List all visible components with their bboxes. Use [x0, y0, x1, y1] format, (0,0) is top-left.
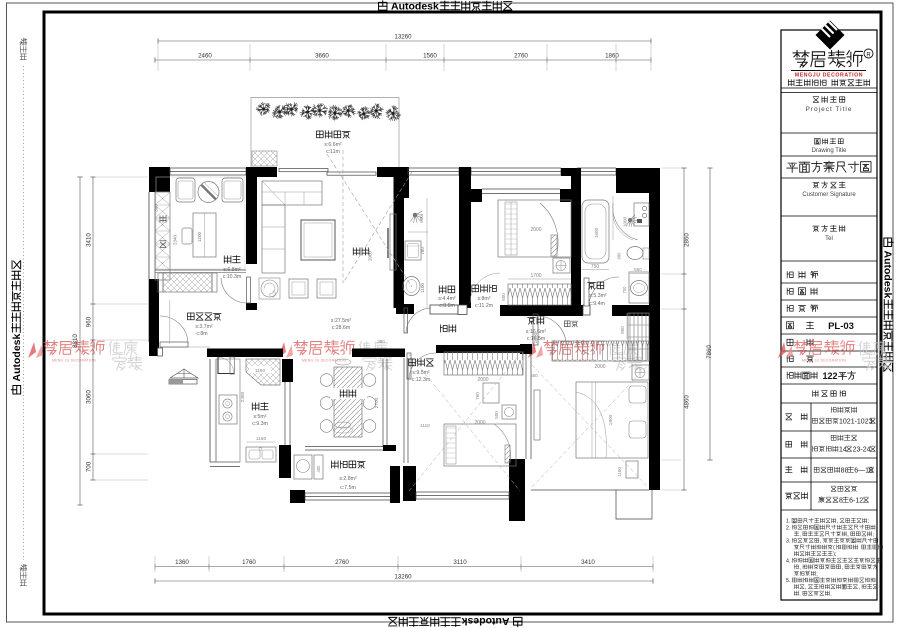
svg-text:3410: 3410	[581, 559, 595, 566]
svg-text:400: 400	[316, 465, 321, 473]
svg-text:600: 600	[501, 293, 506, 301]
svg-text:2340: 2340	[173, 234, 178, 245]
svg-text:,: ,	[847, 532, 848, 538]
svg-text:122: 122	[822, 371, 837, 381]
svg-text:1360: 1360	[175, 559, 189, 566]
svg-text:800: 800	[620, 326, 625, 334]
svg-text:1.: 1.	[786, 519, 790, 525]
svg-text:MENGJU DECORATION: MENGJU DECORATION	[795, 73, 863, 79]
svg-text:88: 88	[841, 468, 849, 475]
svg-text:1700: 1700	[530, 273, 541, 279]
svg-text:c:8m: c:8m	[196, 331, 207, 337]
svg-text:c:10.3m: c:10.3m	[223, 274, 241, 280]
svg-text:c:9.4m: c:9.4m	[589, 301, 605, 307]
svg-text:750: 750	[591, 264, 600, 270]
svg-text:,: ,	[805, 585, 806, 591]
svg-text:300: 300	[377, 339, 385, 344]
svg-text:2000: 2000	[477, 377, 488, 383]
svg-text:,: ,	[858, 585, 859, 591]
svg-text:· · · · · · · ·: · · · · · · · ·	[567, 364, 582, 368]
svg-text:8: 8	[839, 498, 843, 505]
svg-text:.: .	[799, 591, 800, 597]
svg-text:;: ;	[816, 572, 817, 578]
svg-text:.: .	[830, 591, 831, 597]
svg-text:Project Title: Project Title	[806, 106, 853, 113]
svg-text:R: R	[866, 53, 871, 59]
svg-text:c:11.2m: c:11.2m	[475, 303, 493, 309]
svg-text:s:4.4m²: s:4.4m²	[438, 296, 456, 302]
svg-text:Autodesk: Autodesk	[462, 615, 510, 627]
svg-text:c:7.5m: c:7.5m	[340, 485, 356, 491]
svg-text:550: 550	[530, 373, 538, 378]
svg-text:13260: 13260	[394, 574, 412, 581]
svg-text:);: );	[833, 552, 836, 558]
svg-text:Autodesk: Autodesk	[11, 334, 23, 382]
svg-text:s:3.7m²: s:3.7m²	[195, 324, 213, 330]
svg-text:760: 760	[475, 392, 480, 400]
svg-text:s:8m²: s:8m²	[478, 296, 491, 302]
svg-text:c:8.8m: c:8.8m	[439, 303, 455, 309]
svg-text:2000: 2000	[368, 250, 373, 261]
svg-text:,: ,	[820, 539, 821, 545]
svg-text:,: ,	[837, 519, 838, 525]
svg-text:1021-1023: 1021-1023	[839, 419, 873, 426]
svg-text:880: 880	[617, 252, 622, 260]
svg-text:1100: 1100	[420, 283, 425, 293]
svg-text:,: ,	[799, 532, 800, 538]
svg-text:c:9.3m: c:9.3m	[252, 421, 268, 427]
svg-text:3060: 3060	[86, 390, 93, 404]
svg-text:550: 550	[634, 267, 642, 272]
svg-text:· · · · · · · ·: · · · · · · · ·	[317, 364, 332, 368]
svg-text:1800: 1800	[608, 414, 614, 425]
svg-text:· · · · · · · ·: · · · · · · · ·	[817, 364, 832, 368]
svg-text:MENG JU DECORATION: MENG JU DECORATION	[52, 359, 96, 363]
svg-text:Drawing Title: Drawing Title	[812, 148, 847, 154]
svg-text:3.: 3.	[786, 539, 790, 545]
svg-text:1560: 1560	[423, 53, 437, 60]
svg-text:3410: 3410	[86, 233, 93, 247]
svg-text:23-24: 23-24	[853, 447, 871, 454]
svg-text:s:27.5m²: s:27.5m²	[331, 318, 351, 324]
svg-text:(: (	[833, 545, 835, 551]
svg-text:Tel: Tel	[825, 236, 833, 242]
svg-text:Autodesk: Autodesk	[391, 1, 439, 13]
svg-text:2000: 2000	[533, 332, 539, 343]
svg-text:7860: 7860	[706, 345, 713, 359]
svg-text:13260: 13260	[394, 34, 412, 41]
svg-text:2760: 2760	[514, 53, 528, 60]
svg-text:s:2.8m²: s:2.8m²	[339, 476, 357, 482]
svg-text:s:6.8m²: s:6.8m²	[223, 267, 241, 273]
svg-text:8810: 8810	[72, 334, 79, 348]
svg-text:s:5.3m²: s:5.3m²	[589, 293, 607, 299]
svg-text:5.: 5.	[786, 578, 790, 584]
svg-text:;: ;	[868, 519, 869, 525]
svg-text:300: 300	[154, 204, 159, 212]
svg-text:s:6.6m²: s:6.6m²	[324, 142, 342, 148]
svg-text:PL-03: PL-03	[828, 321, 854, 332]
svg-text:2700: 2700	[374, 397, 380, 408]
svg-text:2000: 2000	[594, 364, 605, 370]
svg-text:Autodesk: Autodesk	[882, 251, 894, 299]
svg-text:1160: 1160	[255, 368, 266, 374]
svg-text:c:28.6m: c:28.6m	[332, 325, 350, 331]
svg-text:14: 14	[839, 447, 847, 454]
svg-text:4860: 4860	[684, 395, 691, 409]
svg-text:1760: 1760	[242, 559, 256, 566]
svg-text:3110: 3110	[453, 559, 467, 566]
svg-text:c:12.3m: c:12.3m	[412, 377, 430, 383]
svg-text:s:9.5m²: s:9.5m²	[412, 370, 430, 376]
svg-text:2460: 2460	[198, 53, 212, 60]
svg-text:1160: 1160	[617, 467, 622, 477]
svg-text:960: 960	[86, 316, 93, 327]
svg-text:700: 700	[622, 286, 627, 294]
svg-text:,: ,	[799, 565, 800, 571]
svg-text:1160: 1160	[256, 436, 267, 442]
svg-text:780: 780	[420, 247, 425, 255]
svg-text:s:5m²: s:5m²	[254, 414, 267, 420]
svg-text:3660: 3660	[315, 53, 329, 60]
svg-text:1600: 1600	[594, 227, 599, 238]
svg-text:,: ,	[842, 565, 843, 571]
svg-text:2760: 2760	[335, 559, 349, 566]
svg-text:2860: 2860	[684, 233, 691, 247]
svg-text:2.: 2.	[786, 525, 790, 531]
svg-text:MENG JU DECORATION: MENG JU DECORATION	[802, 359, 846, 363]
svg-text:4.: 4.	[786, 558, 790, 564]
svg-text:1110: 1110	[420, 423, 430, 429]
svg-text:500: 500	[494, 411, 499, 419]
svg-text:900: 900	[419, 215, 424, 223]
svg-text:1200: 1200	[197, 231, 202, 242]
svg-text:1860: 1860	[605, 53, 619, 60]
svg-text:700: 700	[86, 461, 93, 472]
svg-text:2000: 2000	[474, 420, 485, 426]
svg-text:Customer Signature: Customer Signature	[802, 192, 856, 198]
svg-text:2380: 2380	[240, 391, 246, 402]
svg-text:· · · · · · · ·: · · · · · · · ·	[67, 364, 82, 368]
svg-text:c:11m: c:11m	[326, 149, 340, 155]
svg-text:2000: 2000	[530, 227, 541, 233]
svg-text:1000: 1000	[623, 216, 628, 227]
svg-text:;: ;	[873, 532, 874, 538]
svg-text:6-12: 6-12	[849, 498, 863, 505]
